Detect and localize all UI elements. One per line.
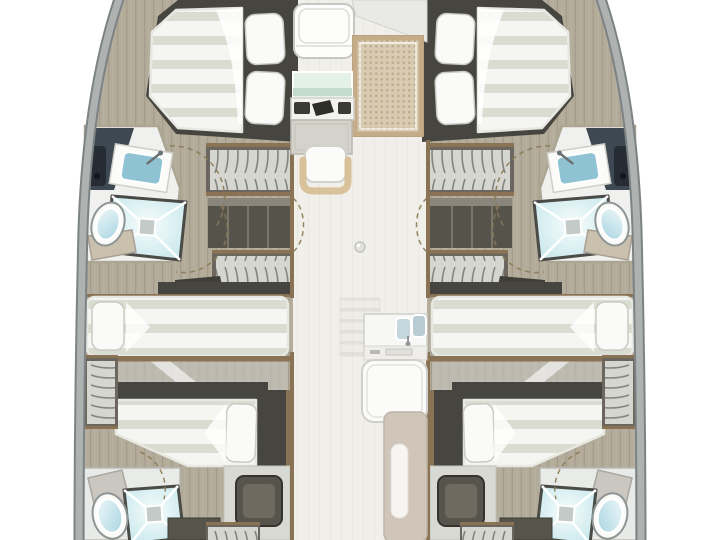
aft-bed-head-panel: [110, 382, 268, 400]
pillow: [245, 71, 286, 125]
burner: [338, 102, 351, 114]
starboard-hull: [422, 0, 641, 540]
pillow: [245, 13, 286, 65]
washbasin-unit: [109, 143, 173, 192]
drawer-handle: [370, 350, 380, 354]
pillow: [92, 302, 124, 350]
hanging-locker-aft: [206, 522, 260, 540]
hangers: [210, 150, 292, 190]
shower-drain: [145, 505, 162, 522]
galley: [291, 72, 354, 191]
shower-drain: [138, 218, 155, 235]
shelf-unit: [208, 198, 294, 248]
port-hull: [79, 0, 298, 540]
sink-basin: [412, 315, 426, 337]
door-knob: [94, 173, 100, 179]
burner: [294, 102, 310, 114]
floor-plan-canvas: [0, 0, 720, 540]
floor-fitting-knob: [355, 242, 365, 252]
dinette-table: [353, 36, 424, 137]
sink-unit: [364, 314, 427, 360]
aft-bed-side-frame: [256, 390, 288, 472]
pillow: [225, 403, 257, 462]
stove: [291, 98, 354, 120]
floor-plan: [0, 0, 720, 540]
hanging-locker-outboard: [84, 355, 118, 429]
corridor-wall-trim: [290, 352, 294, 540]
salon-seat: [294, 4, 354, 58]
hangers: [208, 527, 258, 540]
hangers: [87, 361, 115, 424]
hanging-locker: [206, 143, 294, 196]
cabinet-top: [243, 484, 275, 518]
corridor-wall-trim: [290, 140, 294, 298]
mid-bed-head-panel: [158, 282, 290, 296]
drawer: [386, 349, 412, 355]
entry-panel: [384, 412, 427, 540]
step-slot: [391, 444, 408, 518]
